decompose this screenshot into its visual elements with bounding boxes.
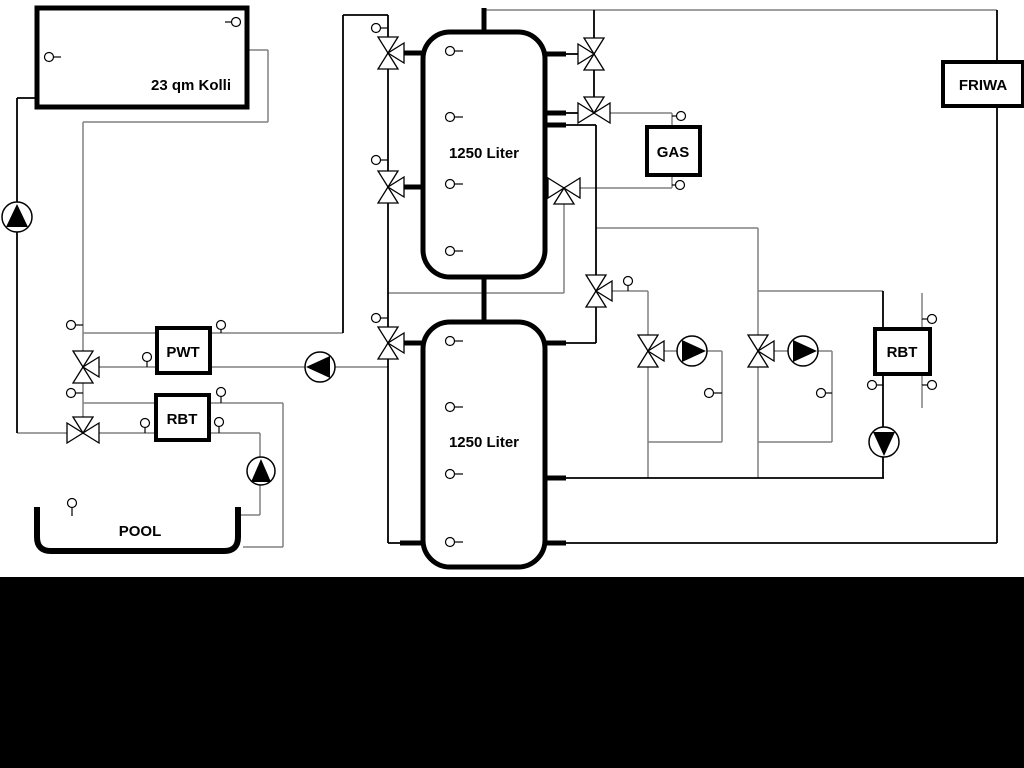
rbt-heating-label: RBT (887, 344, 918, 361)
buffer-tank-top-label: 1250 Liter (449, 145, 519, 162)
rbt-pool-label: RBT (167, 411, 198, 428)
hydraulic-schematic: 23 qm Kolli 1250 Liter 1250 Liter PWT RB… (0, 0, 1024, 768)
pump-right-icon (788, 336, 818, 366)
pump-down-icon (869, 427, 899, 457)
pump-right-icon (677, 336, 707, 366)
collector-label: 23 qm Kolli (151, 77, 231, 94)
pump-left-icon (305, 352, 335, 382)
friwa-label: FRIWA (959, 77, 1007, 94)
buffer-tank-bottom-label: 1250 Liter (449, 434, 519, 451)
pool-label: POOL (119, 523, 162, 540)
footer-bar (0, 577, 1024, 768)
gas-label: GAS (657, 144, 690, 161)
pump-up-icon (2, 202, 32, 232)
pwt-label: PWT (166, 344, 199, 361)
schematic-canvas: 23 qm Kolli 1250 Liter 1250 Liter PWT RB… (0, 0, 1024, 768)
pump-up-icon (247, 457, 275, 485)
